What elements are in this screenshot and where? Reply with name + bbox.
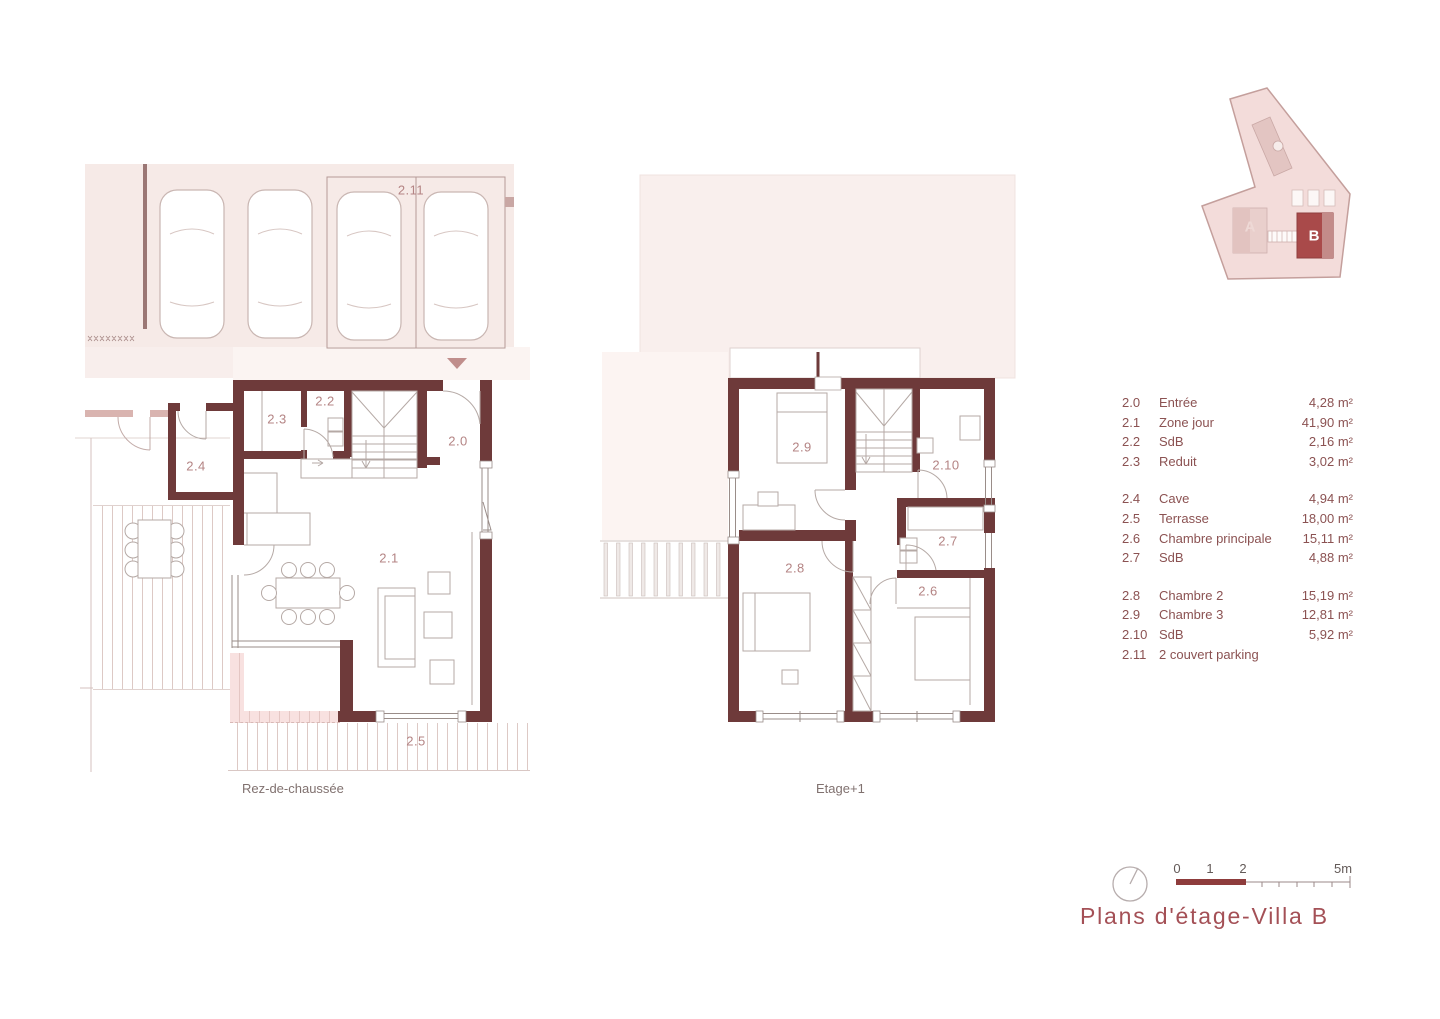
legend-room-name: Terrasse: [1159, 509, 1302, 529]
legend-room-name: Reduit: [1159, 452, 1309, 472]
legend-room-number: 2.1: [1122, 413, 1159, 433]
legend-room-area: 12,81 m²: [1302, 605, 1353, 625]
outdoor-table: [125, 520, 184, 578]
scale-label-5m: 5m: [1334, 861, 1352, 876]
parking-post: [505, 197, 514, 207]
legend-room-name: 2 couvert parking: [1159, 645, 1353, 665]
site-key-map: [1202, 88, 1350, 279]
legend-row: 2.5 Terrasse 18,00 m²: [1122, 509, 1353, 529]
room-label-chambre3: 2.9: [792, 440, 812, 455]
legend-room-number: 2.6: [1122, 529, 1159, 549]
legend-group-1: 2.0 Entrée 4,28 m² 2.1 Zone jour 41,90 m…: [1122, 393, 1353, 471]
room-label-sdb-rdc: 2.2: [315, 394, 335, 409]
scale-label-1: 1: [1206, 861, 1213, 876]
legend-room-number: 2.4: [1122, 489, 1159, 509]
legend-room-number: 2.7: [1122, 548, 1159, 568]
balcony-railing: [600, 541, 728, 598]
legend-room-number: 2.11: [1122, 645, 1159, 665]
site-building-a-label: A: [1245, 219, 1256, 236]
room-legend: 2.0 Entrée 4,28 m² 2.1 Zone jour 41,90 m…: [1122, 393, 1353, 682]
legend-row: 2.4 Cave 4,94 m²: [1122, 489, 1353, 509]
ground-floor-plan: [75, 380, 492, 772]
legend-row: 2.7 SdB 4,88 m²: [1122, 548, 1353, 568]
north-compass-icon: [1113, 867, 1147, 901]
legend-room-number: 2.0: [1122, 393, 1159, 413]
room-label-sdb-210: 2.10: [932, 458, 959, 473]
legend-row: 2.10 SdB 5,92 m²: [1122, 625, 1353, 645]
legend-room-number: 2.9: [1122, 605, 1159, 625]
legend-row: 2.9 Chambre 3 12,81 m²: [1122, 605, 1353, 625]
legend-row: 2.6 Chambre principale 15,11 m²: [1122, 529, 1353, 549]
site-building-b-label: B: [1309, 228, 1320, 245]
scale-label-2: 2: [1239, 861, 1246, 876]
legend-room-number: 2.2: [1122, 432, 1159, 452]
legend-room-area: 5,92 m²: [1309, 625, 1353, 645]
scale-label-0: 0: [1173, 861, 1180, 876]
room-label-chambre-principale: 2.6: [918, 584, 938, 599]
legend-room-name: SdB: [1159, 548, 1309, 568]
legend-room-area: 4,28 m²: [1309, 393, 1353, 413]
legend-room-name: Chambre 2: [1159, 586, 1302, 606]
room-label-cave: 2.4: [186, 459, 206, 474]
parking-wall: [143, 164, 147, 329]
legend-group-2: 2.4 Cave 4,94 m² 2.5 Terrasse 18,00 m² 2…: [1122, 489, 1353, 567]
legend-room-area: 15,11 m²: [1303, 529, 1353, 549]
caption-ground-floor: Rez-de-chaussée: [242, 781, 344, 796]
legend-room-name: SdB: [1159, 625, 1309, 645]
legend-room-name: Chambre principale: [1159, 529, 1303, 549]
room-label-entree: 2.0: [448, 434, 468, 449]
room-label-reduit: 2.3: [267, 412, 287, 427]
legend-room-name: Cave: [1159, 489, 1309, 509]
legend-room-area: 4,94 m²: [1309, 489, 1353, 509]
room-label-terrasse: 2.5: [406, 734, 426, 749]
legend-room-number: 2.5: [1122, 509, 1159, 529]
legend-room-area: 4,88 m²: [1309, 548, 1353, 568]
legend-room-area: 18,00 m²: [1302, 509, 1353, 529]
parking-area: [85, 164, 530, 380]
legend-room-name: Chambre 3: [1159, 605, 1302, 625]
legend-room-number: 2.8: [1122, 586, 1159, 606]
room-label-parking: 2.11: [398, 183, 424, 198]
legend-row: 2.3 Reduit 3,02 m²: [1122, 452, 1353, 472]
floorplan-sheet: 2.11 2.3 2.2 2.0 2.4 2.1 2.5 2.9 2.10 2.…: [0, 0, 1440, 1019]
sheet-title: Plans d'étage-Villa B: [1080, 903, 1329, 930]
legend-room-area: 15,19 m²: [1302, 586, 1353, 606]
caption-upper-floor: Etage+1: [816, 781, 865, 796]
legend-row: 2.8 Chambre 2 15,19 m²: [1122, 586, 1353, 606]
room-label-chambre2: 2.8: [785, 561, 805, 576]
legend-room-area: 41,90 m²: [1302, 413, 1353, 433]
room-label-zone-jour: 2.1: [379, 551, 399, 566]
legend-row: 2.1 Zone jour 41,90 m²: [1122, 413, 1353, 433]
legend-room-number: 2.10: [1122, 625, 1159, 645]
legend-row: 2.11 2 couvert parking: [1122, 645, 1353, 665]
legend-room-name: SdB: [1159, 432, 1309, 452]
legend-room-name: Zone jour: [1159, 413, 1302, 433]
legend-room-number: 2.3: [1122, 452, 1159, 472]
scale-bar: [1176, 876, 1350, 888]
legend-room-area: 2,16 m²: [1309, 432, 1353, 452]
legend-room-name: Entrée: [1159, 393, 1309, 413]
legend-group-3: 2.8 Chambre 2 15,19 m² 2.9 Chambre 3 12,…: [1122, 586, 1353, 664]
legend-row: 2.2 SdB 2,16 m²: [1122, 432, 1353, 452]
legend-room-area: 3,02 m²: [1309, 452, 1353, 472]
room-label-sdb-27: 2.7: [938, 534, 958, 549]
legend-row: 2.0 Entrée 4,28 m²: [1122, 393, 1353, 413]
